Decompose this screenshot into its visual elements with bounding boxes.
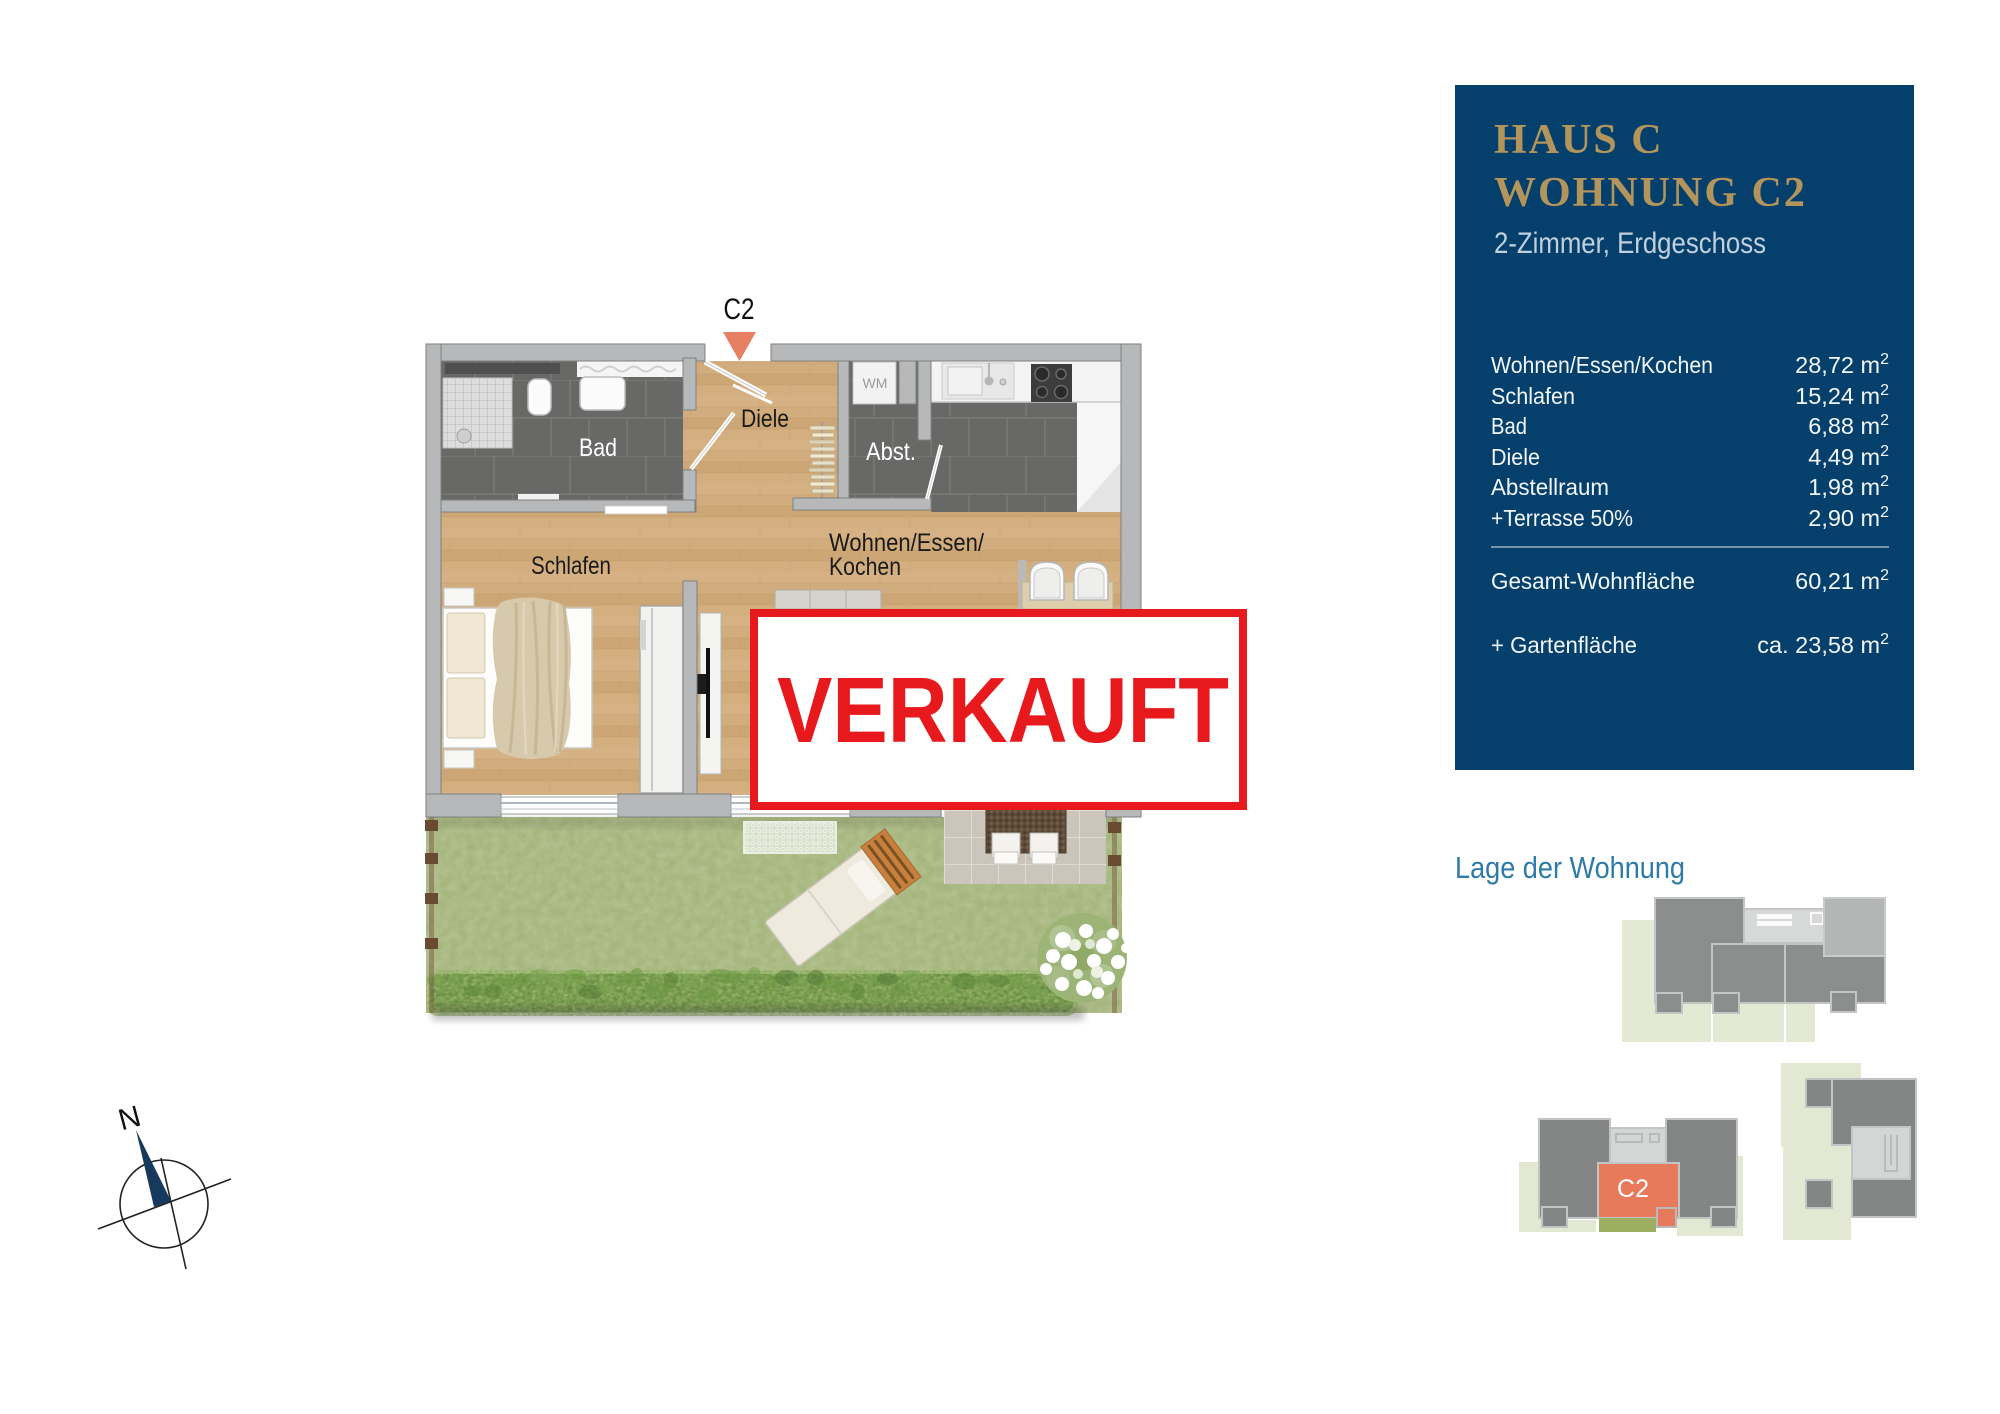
svg-text:WM: WM — [863, 375, 888, 391]
svg-text:Kochen: Kochen — [829, 553, 901, 581]
svg-text:Abst.: Abst. — [866, 438, 916, 466]
svg-text:15,24 m2: 15,24 m2 — [1795, 382, 1889, 409]
svg-text:4,49 m2: 4,49 m2 — [1808, 443, 1889, 470]
svg-text:ca. 23,58 m2: ca. 23,58 m2 — [1757, 631, 1889, 658]
svg-text:Wohnen/Essen/Kochen: Wohnen/Essen/Kochen — [1491, 352, 1713, 378]
svg-text:28,72 m2: 28,72 m2 — [1795, 351, 1889, 378]
svg-text:Lage der Wohnung: Lage der Wohnung — [1455, 850, 1685, 885]
svg-text:Diele: Diele — [741, 405, 789, 433]
svg-text:6,88 m2: 6,88 m2 — [1808, 412, 1889, 439]
svg-text:HAUS C: HAUS C — [1494, 117, 1664, 163]
svg-text:C2: C2 — [724, 293, 755, 326]
svg-text:VERKAUFT: VERKAUFT — [777, 658, 1229, 762]
svg-text:Diele: Diele — [1491, 444, 1540, 470]
svg-text:Bad: Bad — [579, 434, 617, 462]
svg-text:WOHNUNG C2: WOHNUNG C2 — [1494, 170, 1807, 216]
svg-text:+Terrasse 50%: +Terrasse 50% — [1491, 505, 1633, 531]
svg-text:Abstellraum: Abstellraum — [1491, 474, 1609, 500]
svg-text:+ Gartenfläche: + Gartenfläche — [1491, 632, 1637, 658]
svg-text:60,21 m2: 60,21 m2 — [1795, 567, 1889, 594]
svg-text:2-Zimmer, Erdgeschoss: 2-Zimmer, Erdgeschoss — [1494, 227, 1766, 260]
svg-text:1,98 m2: 1,98 m2 — [1808, 473, 1889, 500]
svg-text:C2: C2 — [1617, 1175, 1649, 1203]
svg-text:2,90 m2: 2,90 m2 — [1808, 504, 1889, 531]
svg-text:Bad: Bad — [1491, 413, 1527, 439]
svg-text:Gesamt-Wohnfläche: Gesamt-Wohnfläche — [1491, 568, 1695, 594]
svg-text:Schlafen: Schlafen — [1491, 383, 1575, 409]
svg-text:Schlafen: Schlafen — [531, 552, 611, 580]
